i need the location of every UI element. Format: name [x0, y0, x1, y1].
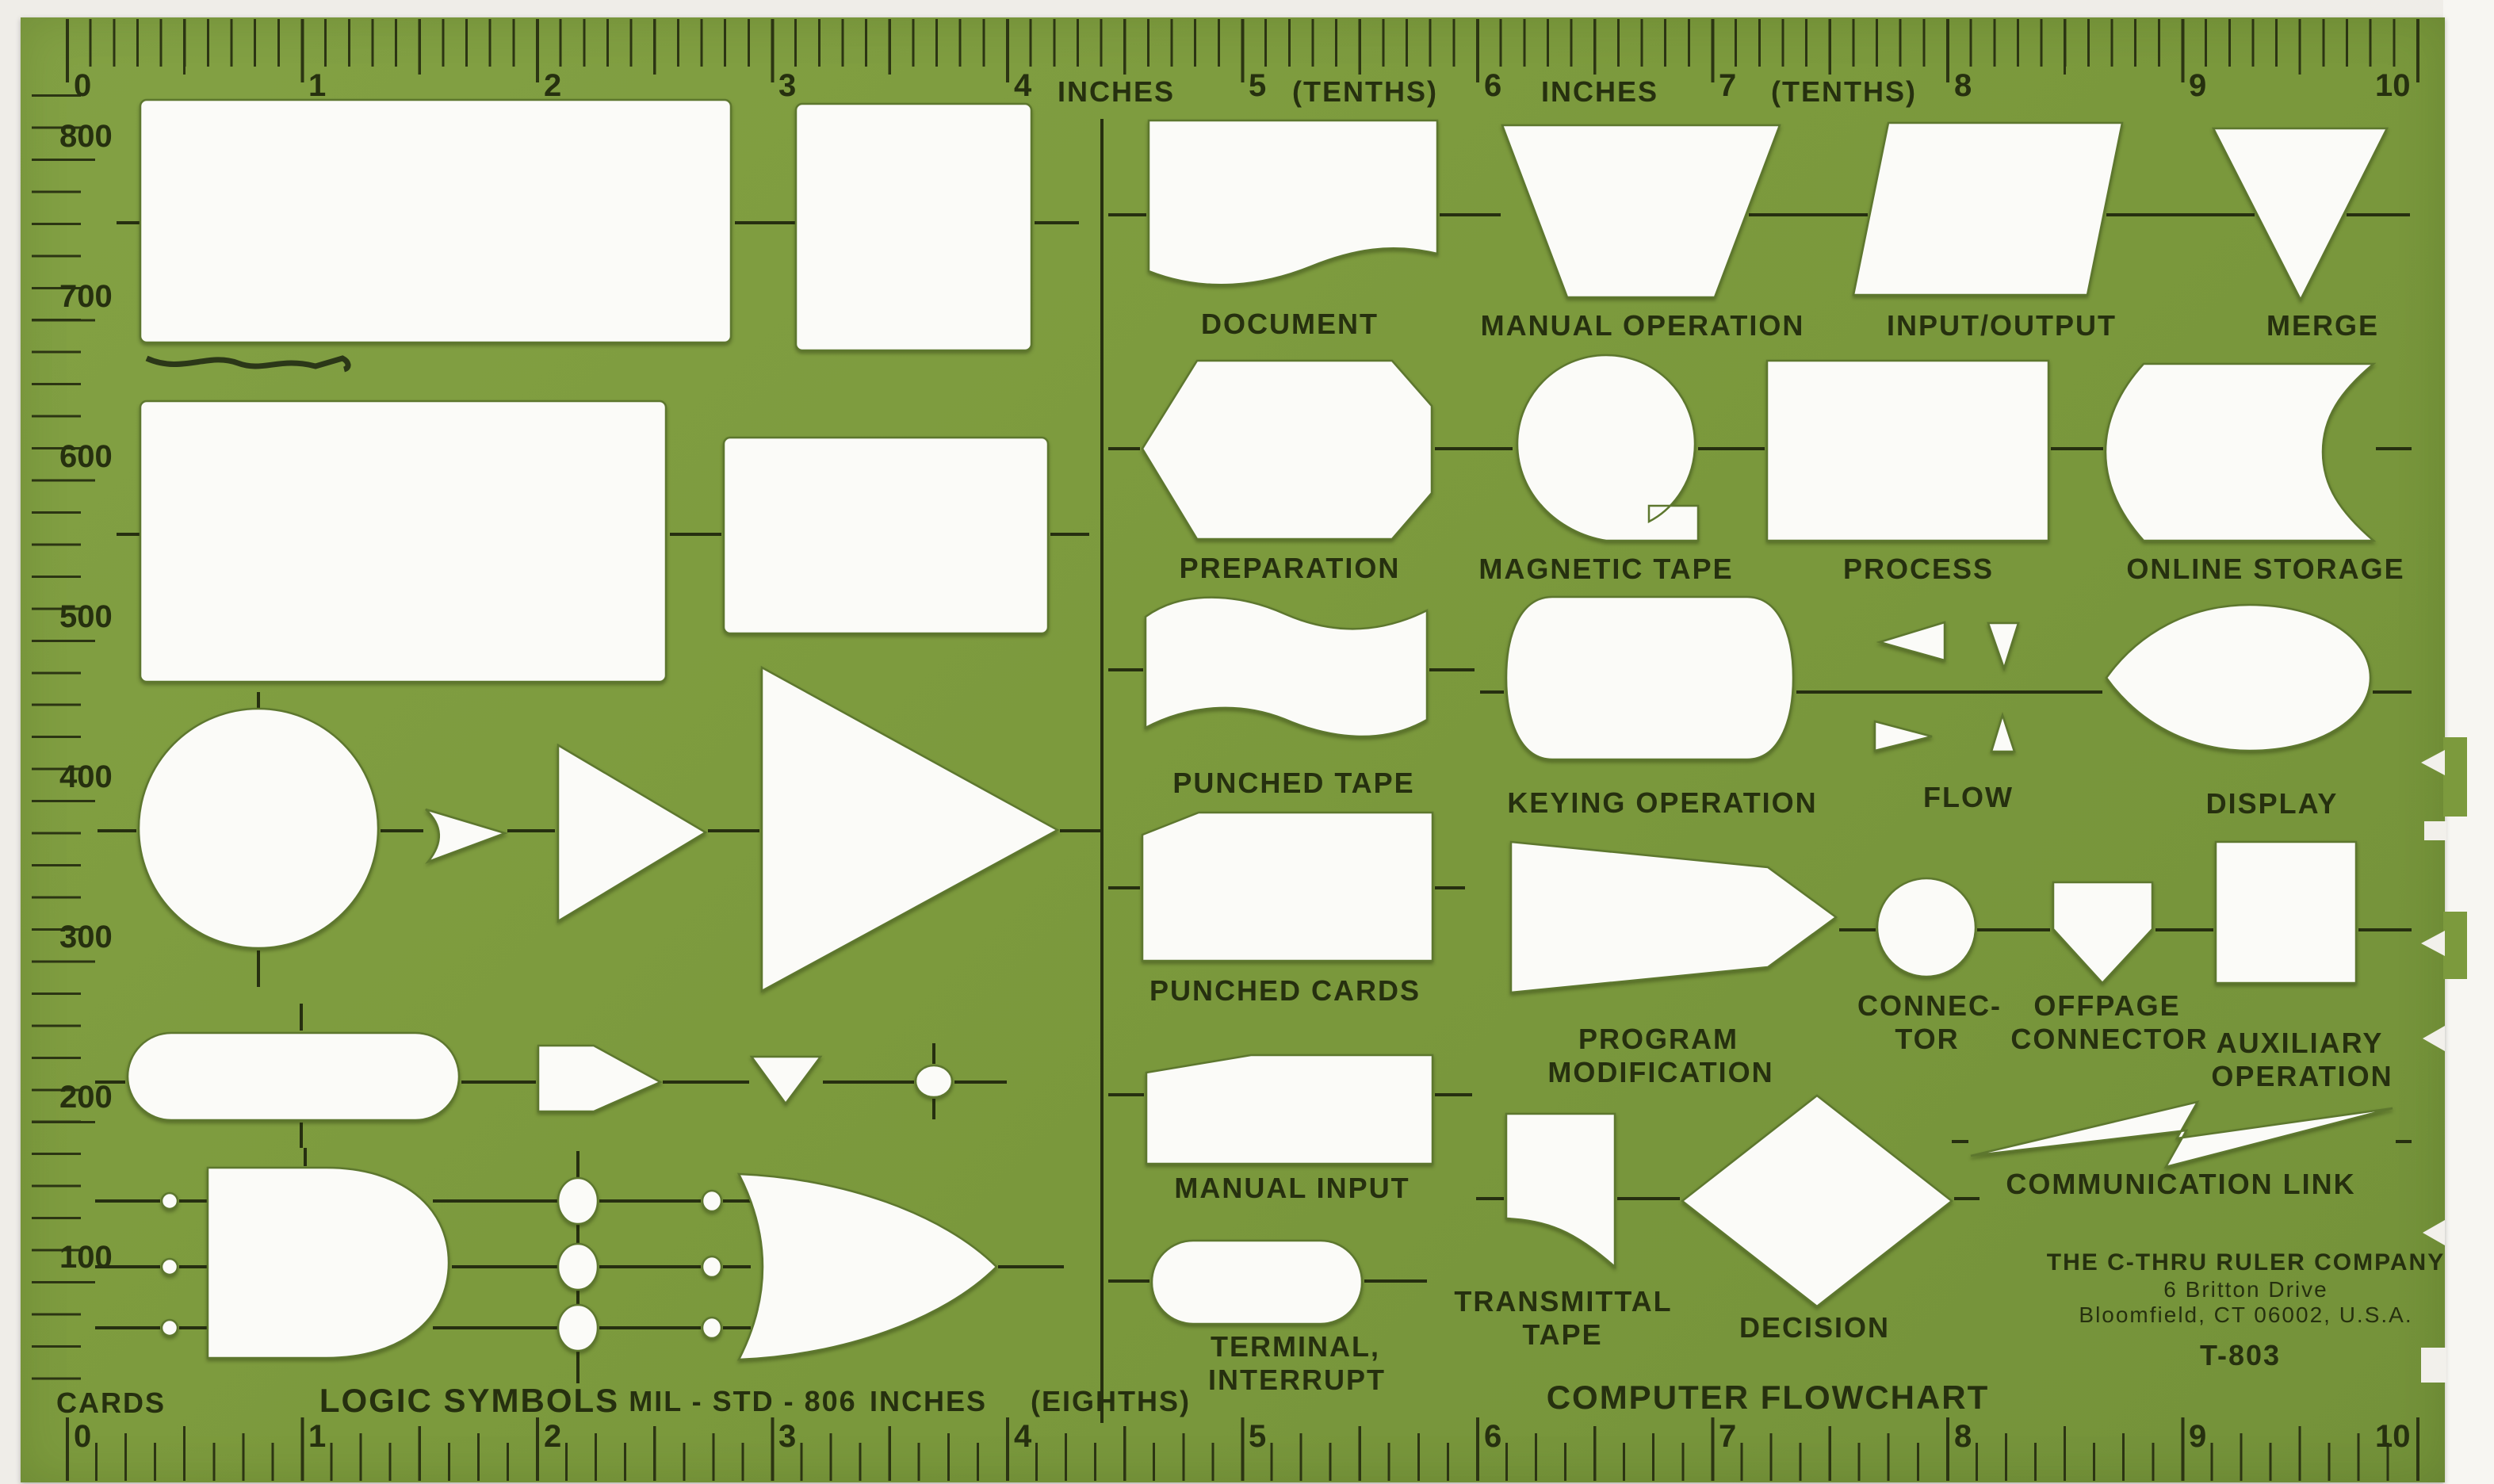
small-hole	[702, 1191, 721, 1211]
symbol-label-flow: FLOW	[1923, 782, 2014, 813]
bottom-ruler-number: 4	[1014, 1421, 1031, 1452]
top-ruler-subunits-label: (TENTHS)	[1292, 76, 1438, 108]
top-ruler-number: 1	[308, 70, 326, 101]
manual-operation-cutout	[1502, 125, 1780, 297]
edge-notches	[2421, 750, 2446, 1383]
top-ruler-number: 9	[2189, 70, 2206, 101]
top-ruler-number: 6	[1484, 70, 1501, 101]
manual-input-cutout	[1146, 1055, 1433, 1164]
symbol-label-connec: CONNEC-	[1857, 990, 2002, 1022]
junction-hole	[558, 1178, 598, 1224]
mil-std-label: MIL - STD - 806	[629, 1386, 856, 1417]
bottom-ruler-number: 9	[2189, 1421, 2206, 1452]
bottom-ruler-number: 0	[74, 1421, 91, 1452]
bottom-subunits-label: (EIGHTHS)	[1031, 1386, 1191, 1417]
program-modification-cutout	[1511, 842, 1836, 993]
left-ruler-number: 600	[59, 441, 113, 472]
online-storage-cutout	[2106, 364, 2374, 541]
bottom-units-label: INCHES	[870, 1386, 987, 1417]
scanned-template: 0 1 2 3 4 5 6 7 8 9 10 INCHES (TENTHS) I…	[0, 0, 2494, 1484]
bottom-ruler-number: 7	[1719, 1421, 1736, 1452]
symbol-label-punched-tape: PUNCHED TAPE	[1172, 767, 1414, 799]
small-circle-cutout	[916, 1065, 952, 1097]
offpage-connector-cutout	[2053, 882, 2152, 983]
small-hole	[702, 1318, 721, 1338]
symbol-label-tor: TOR	[1895, 1023, 1959, 1055]
symbol-label-interrupt: INTERRUPT	[1208, 1364, 1386, 1396]
small-hole	[702, 1256, 721, 1277]
bottom-ruler-number: 10	[2375, 1421, 2411, 1452]
symbol-label-punched-cards: PUNCHED CARDS	[1149, 975, 1421, 1007]
small-down-triangle-cutout	[752, 1057, 820, 1103]
flow-arrowhead-left	[1880, 622, 1945, 660]
keying-operation-cutout	[1506, 597, 1793, 759]
symbol-label-manual-input: MANUAL INPUT	[1174, 1172, 1410, 1204]
model-number: T-803	[2200, 1340, 2281, 1371]
punched-cards-cutout	[1142, 813, 1433, 961]
symbol-label-process: PROCESS	[1843, 553, 1994, 585]
symbol-label-input-output: INPUT/OUTPUT	[1887, 310, 2117, 342]
top-ruler-subunits-label: (TENTHS)	[1771, 76, 1917, 108]
symbol-label-auxiliary: AUXILIARY	[2217, 1027, 2384, 1059]
left-ruler-number: 400	[59, 761, 113, 793]
flow-arrowhead-right	[1875, 721, 1932, 751]
symbol-label-keying-operation: KEYING OPERATION	[1507, 787, 1817, 819]
left-ruler-number: 800	[59, 120, 113, 152]
symbol-label-program: PROGRAM	[1578, 1023, 1739, 1055]
symbol-label-magnetic-tape: MAGNETIC TAPE	[1478, 553, 1733, 585]
or-gate-cutout	[739, 1174, 996, 1360]
left-ruler-number: 500	[59, 601, 113, 633]
symbol-label-merge: MERGE	[2266, 310, 2379, 342]
flow-arrowhead-narrow-down	[1988, 623, 2018, 668]
left-ruler-number: 700	[59, 281, 113, 312]
transmittal-tape-cutout	[1506, 1114, 1615, 1267]
input-hole	[162, 1320, 178, 1336]
communication-link-cutout	[1971, 1102, 2393, 1167]
symbol-label-decision: DECISION	[1739, 1312, 1890, 1344]
bottom-ruler-number: 8	[1954, 1421, 1972, 1452]
circle-cutout	[139, 709, 378, 948]
symbol-label-online-storage: ONLINE STORAGE	[2126, 553, 2404, 585]
bottom-ruler-number: 6	[1484, 1421, 1501, 1452]
display-cutout	[2106, 605, 2370, 751]
top-ruler-number: 8	[1954, 70, 1972, 101]
bottom-ruler-number: 2	[544, 1421, 561, 1452]
input-hole	[162, 1193, 178, 1209]
left-ruler-number: 300	[59, 921, 113, 953]
company-address1: 6 Britton Drive	[2163, 1277, 2328, 1302]
punched-tape-cutout	[1146, 598, 1427, 736]
top-ruler-number: 7	[1719, 70, 1736, 101]
magnetic-tape-cutout	[1517, 355, 1698, 541]
process-cutout	[1767, 361, 2048, 541]
input-output-cutout	[1853, 123, 2122, 295]
junction-hole	[558, 1305, 598, 1351]
symbol-label-modification: MODIFICATION	[1547, 1057, 1773, 1088]
top-ruler-number: 2	[544, 70, 561, 101]
bottom-ruler-number: 5	[1249, 1421, 1266, 1452]
symbol-label-manual-operation: MANUAL OPERATION	[1481, 310, 1805, 342]
terminal-interrupt-cutout	[1152, 1241, 1362, 1324]
symbol-label-offpage-connector: CONNECTOR	[2010, 1023, 2208, 1055]
flow-arrowhead-narrow-up	[1991, 715, 2014, 752]
junction-hole	[558, 1244, 598, 1290]
symbol-label-document: DOCUMENT	[1201, 308, 1379, 340]
company-name: THE C-THRU RULER COMPANY	[2047, 1249, 2445, 1276]
top-ruler-number: 0	[74, 70, 91, 101]
symbol-label-terminal: TERMINAL,	[1211, 1331, 1380, 1363]
bullet-pointer-cutout	[538, 1046, 660, 1111]
bottom-ruler-number: 1	[308, 1421, 326, 1452]
small-rectangle-cutout	[724, 438, 1048, 633]
input-hole	[162, 1259, 178, 1275]
stadium-cutout	[128, 1033, 459, 1120]
document-cutout	[1149, 120, 1437, 285]
tall-rectangle-cutout	[796, 104, 1031, 350]
large-rectangle-cutout	[140, 100, 731, 342]
symbol-label-transmittal: TRANSMITTAL	[1454, 1286, 1672, 1318]
top-ruler-number: 3	[778, 70, 796, 101]
symbol-label-display: DISPLAY	[2206, 788, 2339, 820]
top-ruler-number: 5	[1249, 70, 1266, 101]
left-ruler-number: 100	[59, 1241, 113, 1273]
decision-cutout	[1682, 1096, 1952, 1306]
top-ruler-units-label: INCHES	[1541, 76, 1658, 108]
symbol-label-preparation: PREPARATION	[1180, 553, 1401, 584]
left-ruler-scale-label: CARDS	[56, 1387, 166, 1419]
large-triangle-cutout	[762, 667, 1058, 991]
symbol-label-offpage: OFFPAGE	[2033, 990, 2180, 1022]
top-ruler-units-label: INCHES	[1058, 76, 1175, 108]
symbol-label-communication-link: COMMUNICATION LINK	[2006, 1168, 2355, 1200]
medium-rectangle-cutout	[140, 401, 666, 682]
top-ruler-number: 4	[1014, 70, 1031, 101]
medium-triangle-cutout	[558, 745, 706, 921]
bottom-ruler-number: 3	[778, 1421, 796, 1452]
auxiliary-operation-cutout	[2216, 842, 2356, 983]
top-ruler-number: 10	[2375, 70, 2411, 101]
left-ruler-number: 200	[59, 1081, 113, 1113]
symbol-label-tape: TAPE	[1522, 1319, 1602, 1351]
symbol-label-aux-operation: OPERATION	[2211, 1061, 2393, 1092]
connector-cutout	[1877, 878, 1976, 977]
pen-scribble-artifact	[147, 358, 348, 369]
preparation-cutout	[1142, 361, 1432, 539]
logic-symbols-title: LOGIC SYMBOLS	[319, 1383, 619, 1419]
flowchart-title: COMPUTER FLOWCHART	[1547, 1379, 1990, 1416]
company-address2: Bloomfield, CT 06002, U.S.A.	[2079, 1302, 2412, 1328]
and-gate-cutout	[208, 1168, 449, 1358]
small-arrowhead-cutout	[426, 809, 505, 862]
